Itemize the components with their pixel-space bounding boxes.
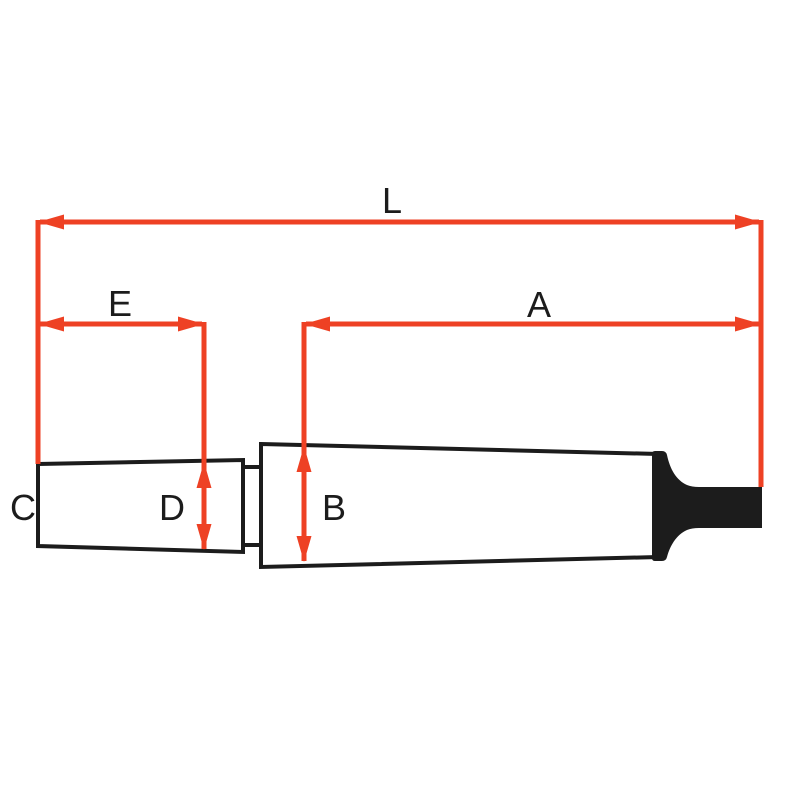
- label-shank-taper-length: A: [527, 284, 551, 325]
- dim-a-arrow-right-icon: [735, 317, 761, 332]
- morse-taper-body: [261, 444, 658, 567]
- chuck-taper-body: [38, 460, 243, 552]
- dim-l-arrow-left-icon: [38, 215, 64, 230]
- dim-e-arrow-right-icon: [178, 317, 204, 332]
- tang: [652, 451, 762, 561]
- label-small-end: C: [10, 487, 36, 528]
- arbor-part: [38, 444, 762, 567]
- diagram-canvas: L E A C D B: [0, 0, 800, 800]
- dim-l-arrow-right-icon: [735, 215, 761, 230]
- label-overall-length: L: [382, 180, 402, 221]
- dim-e-arrow-left-icon: [38, 317, 64, 332]
- label-chuck-taper-length: E: [108, 283, 132, 324]
- arbor-dimension-diagram: L E A C D B: [0, 0, 800, 800]
- label-chuck-end-diameter: D: [159, 487, 185, 528]
- dim-a-arrow-left-icon: [304, 317, 330, 332]
- label-shank-diameter: B: [322, 487, 346, 528]
